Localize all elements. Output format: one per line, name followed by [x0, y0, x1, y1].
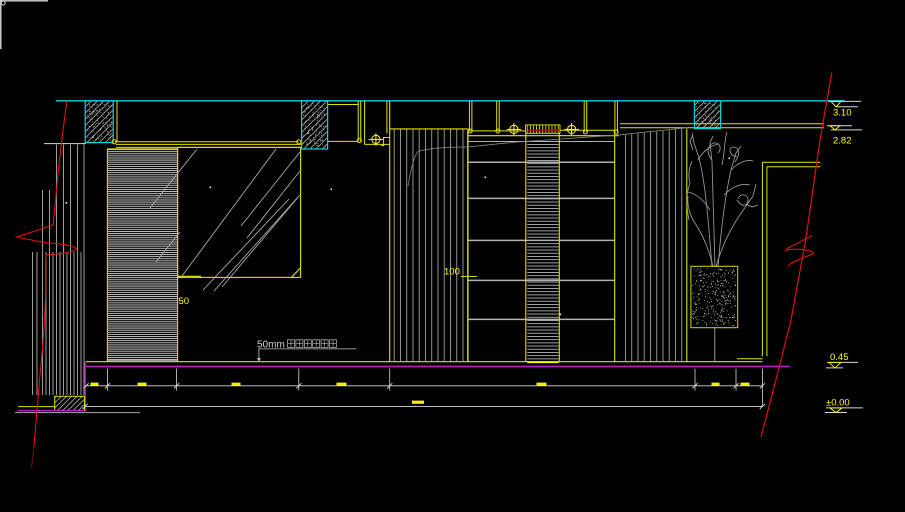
svg-text:3.10: 3.10 [833, 108, 852, 119]
svg-text:100: 100 [444, 267, 460, 278]
svg-text:50: 50 [179, 296, 190, 307]
svg-text:2.82: 2.82 [833, 136, 852, 147]
svg-text:0.45: 0.45 [830, 352, 849, 363]
svg-text:±0.00: ±0.00 [826, 398, 850, 409]
